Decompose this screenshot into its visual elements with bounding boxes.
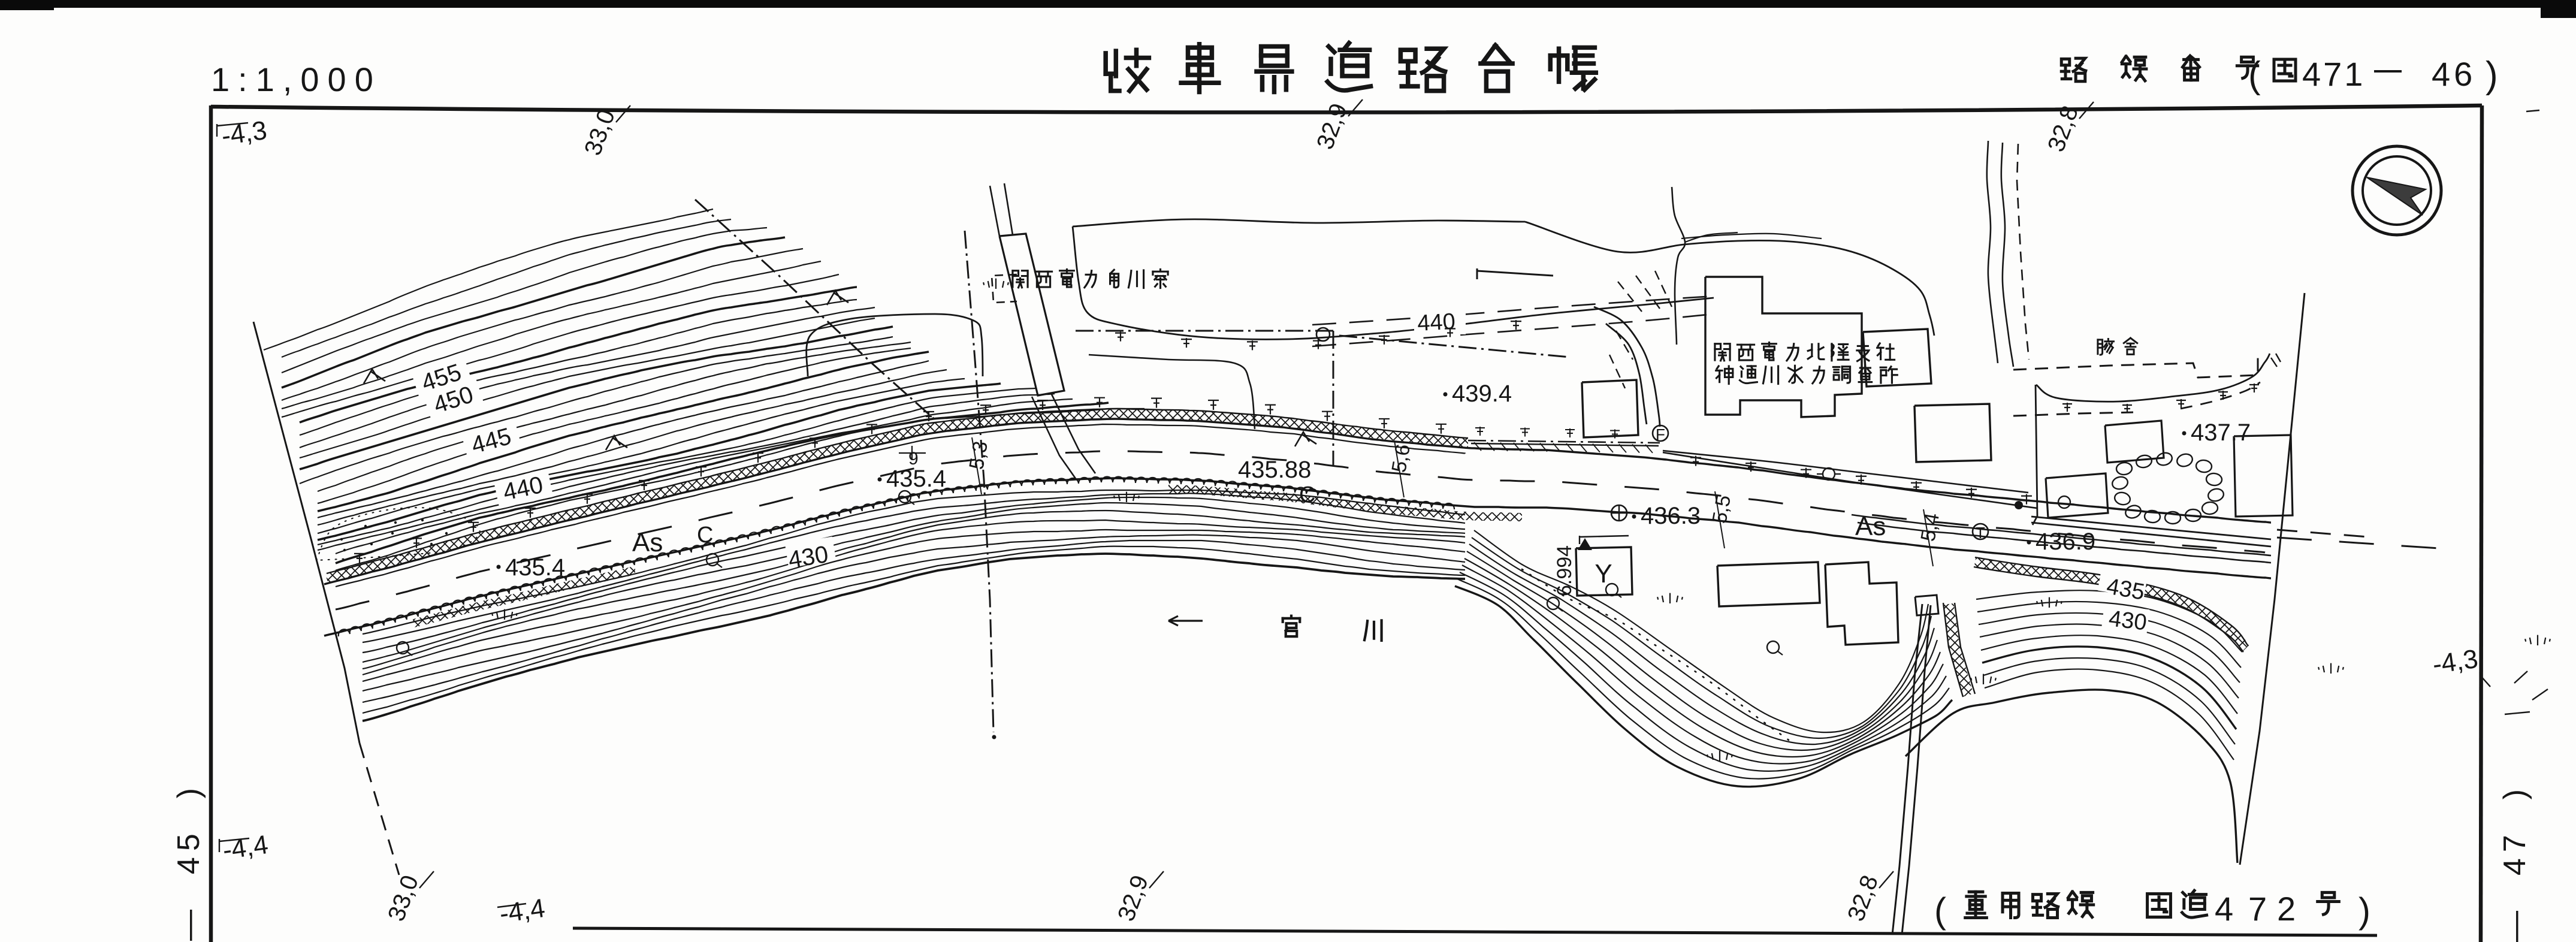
svg-text:439.4: 439.4: [1452, 381, 1512, 407]
svg-text:435.88: 435.88: [1238, 457, 1311, 483]
svg-text:C: C: [1299, 482, 1315, 508]
svg-text:437.7: 437.7: [2191, 419, 2251, 446]
svg-text:5,3: 5,3: [965, 439, 992, 471]
svg-text:— 47 ): — 47 ): [2498, 783, 2532, 942]
svg-text:As: As: [632, 528, 663, 557]
svg-text:1:1,000: 1:1,000: [211, 61, 382, 98]
svg-text:4: 4: [2215, 890, 2233, 928]
svg-text:436.3: 436.3: [1641, 503, 1701, 529]
svg-text:-4,3: -4,3: [220, 116, 269, 151]
svg-text:430: 430: [2107, 606, 2148, 635]
svg-text:435.4: 435.4: [886, 466, 946, 492]
svg-text:-4,4: -4,4: [498, 893, 547, 929]
svg-text:As: As: [1855, 512, 1886, 541]
svg-text:9: 9: [908, 449, 919, 469]
svg-text:46: 46: [2432, 55, 2476, 93]
svg-text:(: (: [1934, 890, 1946, 931]
svg-text:435.4: 435.4: [505, 554, 565, 581]
svg-text:): ): [2358, 890, 2370, 931]
svg-text:7: 7: [2248, 890, 2267, 928]
svg-text:471: 471: [2302, 55, 2365, 93]
svg-text:5,5: 5,5: [1708, 493, 1735, 525]
svg-text:5,4: 5,4: [1916, 511, 1944, 543]
svg-text:-4,3: -4,3: [2431, 644, 2480, 680]
svg-text:-4,4: -4,4: [221, 830, 270, 865]
svg-text:— 45 ): — 45 ): [171, 782, 206, 941]
svg-text:5,6: 5,6: [1387, 442, 1415, 474]
svg-text:T: T: [1976, 524, 1985, 542]
svg-text:2: 2: [2277, 890, 2296, 928]
svg-text:(: (: [2248, 55, 2261, 96]
svg-text:436.9: 436.9: [2036, 529, 2095, 555]
svg-text:F: F: [1656, 425, 1665, 443]
svg-text:): ): [2486, 55, 2498, 96]
svg-text:C: C: [697, 523, 713, 548]
svg-text:Y: Y: [1594, 559, 1612, 588]
